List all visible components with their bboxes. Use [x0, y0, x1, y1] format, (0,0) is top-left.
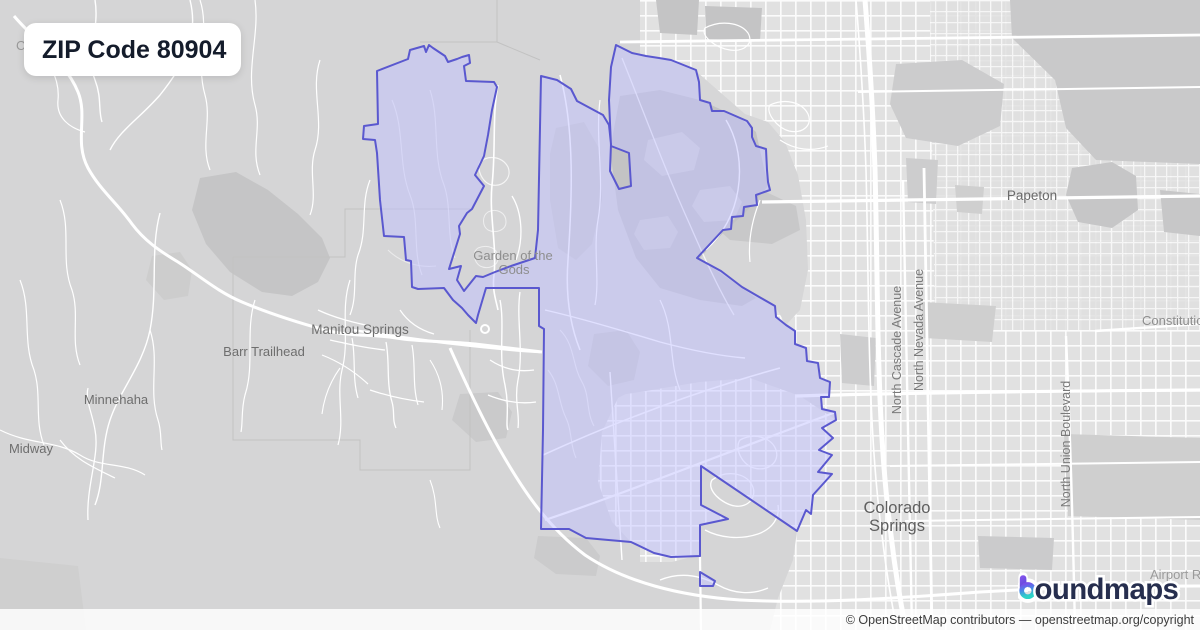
- svg-text:Papeton: Papeton: [1007, 188, 1057, 203]
- svg-text:Minnehaha: Minnehaha: [84, 392, 149, 407]
- svg-text:Midway: Midway: [9, 441, 54, 456]
- svg-text:North Nevada Avenue: North Nevada Avenue: [912, 269, 926, 391]
- svg-text:Colorado: Colorado: [864, 499, 931, 517]
- svg-text:Garden of the: Garden of the: [473, 248, 553, 263]
- svg-text:oundmaps: oundmaps: [1035, 573, 1179, 606]
- svg-text:North Union Boulevard: North Union Boulevard: [1059, 381, 1073, 508]
- svg-text:Barr Trailhead: Barr Trailhead: [223, 344, 305, 359]
- svg-text:Manitou Springs: Manitou Springs: [311, 322, 409, 337]
- svg-text:Gods: Gods: [498, 262, 530, 277]
- svg-text:Springs: Springs: [869, 517, 925, 535]
- svg-text:North Cascade Avenue: North Cascade Avenue: [890, 286, 904, 414]
- svg-text:Constitution Av: Constitution Av: [1142, 313, 1200, 328]
